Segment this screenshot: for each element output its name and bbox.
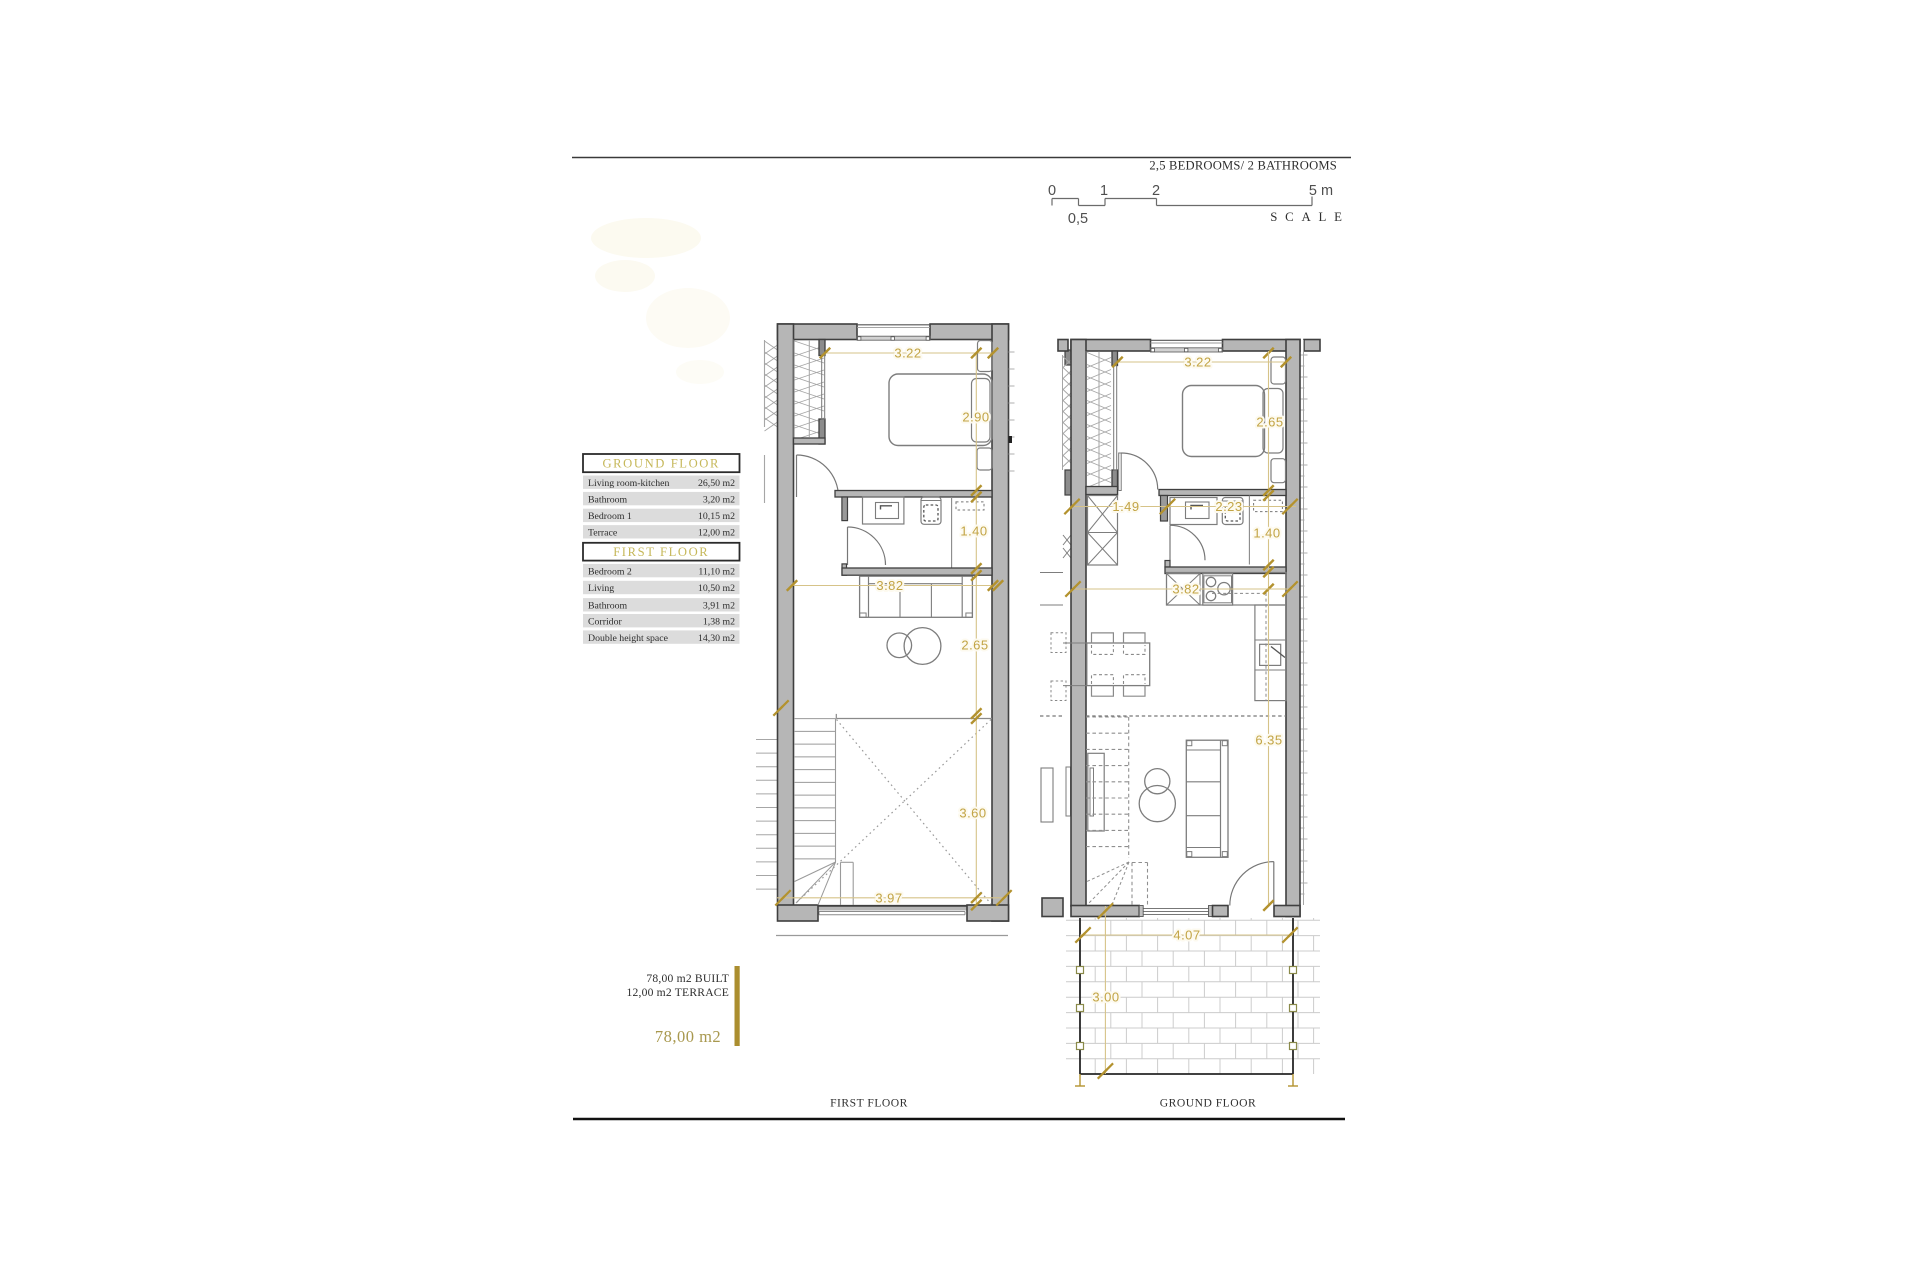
svg-text:12,00 m2: 12,00 m2 xyxy=(698,528,735,539)
svg-text:0,5: 0,5 xyxy=(1068,211,1088,227)
svg-text:Bedroom 1: Bedroom 1 xyxy=(588,511,632,522)
svg-text:Bathroom: Bathroom xyxy=(588,494,628,505)
svg-text:12,00 m2 TERRACE: 12,00 m2 TERRACE xyxy=(626,986,729,999)
svg-text:4.07: 4.07 xyxy=(1173,928,1200,943)
svg-text:Living: Living xyxy=(588,583,614,594)
svg-text:10,50 m2: 10,50 m2 xyxy=(698,583,735,594)
svg-text:Terrace: Terrace xyxy=(588,528,618,539)
svg-text:1.40: 1.40 xyxy=(960,524,987,539)
svg-text:GROUND FLOOR: GROUND FLOOR xyxy=(1160,1097,1257,1110)
svg-text:0: 0 xyxy=(1048,183,1056,199)
svg-text:1.49: 1.49 xyxy=(1112,499,1139,514)
svg-text:10,15 m2: 10,15 m2 xyxy=(698,511,735,522)
svg-text:Double height space: Double height space xyxy=(588,633,669,644)
svg-text:26,50 m2: 26,50 m2 xyxy=(698,478,735,489)
svg-text:Corridor: Corridor xyxy=(588,616,622,627)
svg-text:Bathroom: Bathroom xyxy=(588,601,628,612)
svg-text:1.40: 1.40 xyxy=(1253,526,1280,541)
svg-text:2.90: 2.90 xyxy=(962,410,989,425)
svg-text:2.65: 2.65 xyxy=(1256,415,1283,430)
svg-text:2.23: 2.23 xyxy=(1215,499,1242,514)
svg-text:Bedroom 2: Bedroom 2 xyxy=(588,566,632,577)
svg-text:3.00: 3.00 xyxy=(1092,990,1119,1005)
svg-text:14,30 m2: 14,30 m2 xyxy=(698,633,735,644)
svg-text:6.35: 6.35 xyxy=(1255,733,1282,748)
svg-text:3,20 m2: 3,20 m2 xyxy=(703,494,735,505)
svg-text:FIRST FLOOR: FIRST FLOOR xyxy=(613,545,709,559)
svg-text:FIRST FLOOR: FIRST FLOOR xyxy=(830,1097,908,1110)
svg-text:1,38 m2: 1,38 m2 xyxy=(703,616,735,627)
svg-text:2,5 BEDROOMS/ 2 BATHROOMS: 2,5 BEDROOMS/ 2 BATHROOMS xyxy=(1149,159,1337,173)
svg-text:78,00 m2 BUILT: 78,00 m2 BUILT xyxy=(646,972,729,985)
svg-text:1: 1 xyxy=(1100,183,1108,199)
svg-text:3.22: 3.22 xyxy=(1184,355,1211,370)
svg-text:Living room-kitchen: Living room-kitchen xyxy=(588,478,669,489)
svg-text:3.82: 3.82 xyxy=(1172,582,1199,597)
svg-text:3.60: 3.60 xyxy=(959,806,986,821)
svg-text:3,91 m2: 3,91 m2 xyxy=(703,601,735,612)
svg-text:3.22: 3.22 xyxy=(894,346,921,361)
svg-text:78,00 m2: 78,00 m2 xyxy=(655,1027,721,1046)
svg-text:GROUND FLOOR: GROUND FLOOR xyxy=(602,456,720,470)
svg-text:3.97: 3.97 xyxy=(875,890,902,905)
svg-text:2.65: 2.65 xyxy=(961,638,988,653)
svg-text:5 m: 5 m xyxy=(1309,183,1333,199)
svg-text:SCALE: SCALE xyxy=(1270,210,1350,224)
svg-text:2: 2 xyxy=(1152,183,1160,199)
svg-text:11,10 m2: 11,10 m2 xyxy=(698,566,735,577)
svg-text:3.82: 3.82 xyxy=(876,578,903,593)
